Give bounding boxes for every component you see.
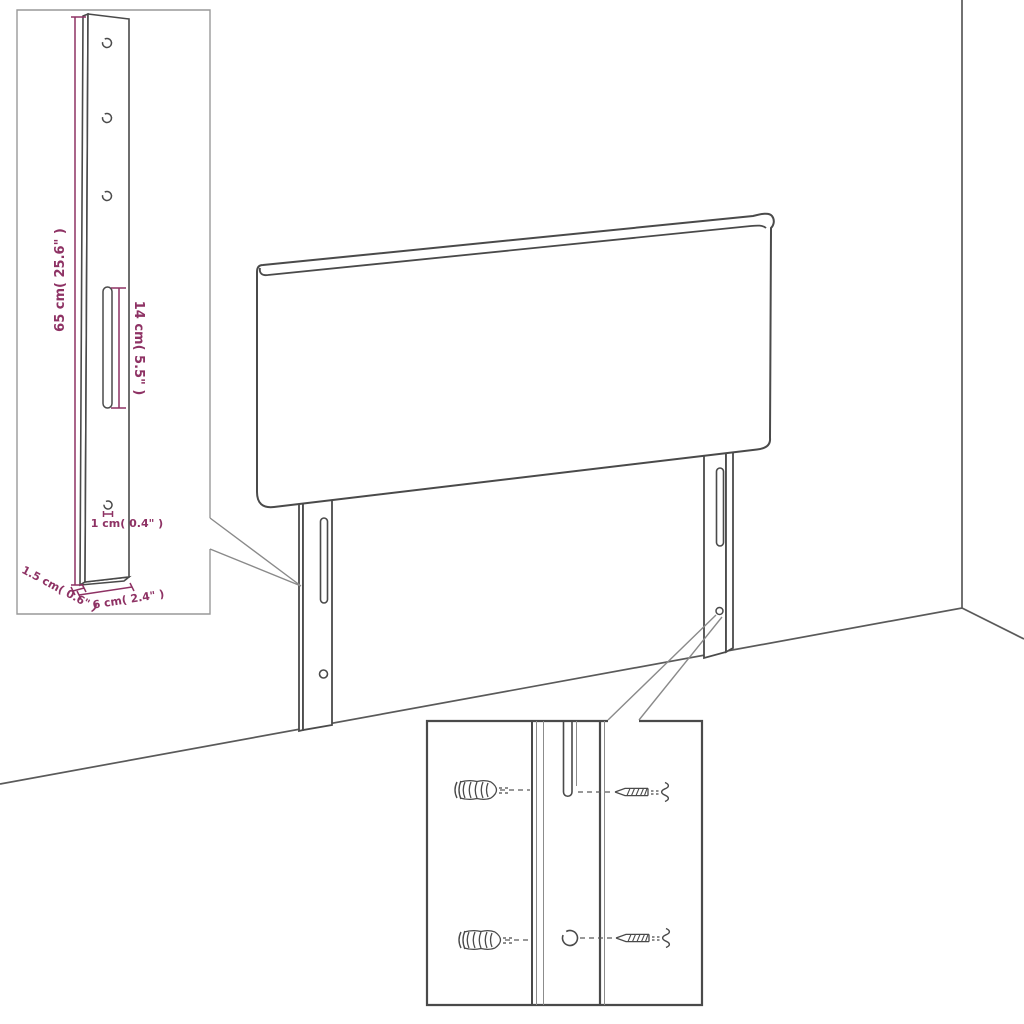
- hardware-leg-hole: [560, 928, 580, 948]
- height-dimension-label: 65 cm( 25.6" ): [53, 228, 68, 332]
- headboard-assembly-diagram: 65 cm( 25.6" ) 14 cm( 5.5" ) 1 cm( 0.4" …: [0, 0, 1024, 1024]
- right-leg-slot: [717, 468, 724, 546]
- headboard-panel: [257, 214, 774, 508]
- hardware-leg-slot: [564, 721, 573, 796]
- hardware-inset-border: [427, 721, 702, 1005]
- headboard-outline: [257, 214, 774, 508]
- bracket-drawing: [80, 14, 129, 585]
- right-leg-side-face: [726, 440, 733, 652]
- screw-bottom: [616, 929, 669, 948]
- guide-dashes: [500, 790, 612, 940]
- bracket-front-face: [85, 14, 129, 582]
- diagram-page: 65 cm( 25.6" ) 14 cm( 5.5" ) 1 cm( 0.4" …: [0, 0, 1024, 1024]
- wall-anchor-bottom: [459, 931, 512, 950]
- floor-line: [0, 608, 1024, 784]
- left-leg-hole: [320, 670, 328, 678]
- bracket-callout-wedge: [210, 518, 301, 586]
- right-leg: [704, 440, 733, 658]
- left-leg-slot: [321, 518, 328, 603]
- hole-dimension-label: 1 cm( 0.4" ): [91, 517, 163, 530]
- right-leg-hole: [716, 608, 723, 615]
- slot-dimension-label: 14 cm( 5.5" ): [131, 301, 146, 396]
- hardware-detail-inset: [427, 721, 702, 1005]
- hardware-leg-strip: [532, 721, 605, 1005]
- screw-top: [615, 783, 668, 802]
- left-leg: [299, 495, 332, 731]
